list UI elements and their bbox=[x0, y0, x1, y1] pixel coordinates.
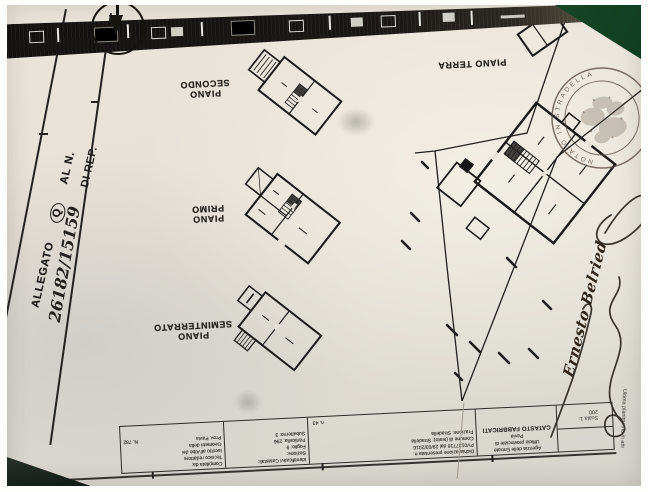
dichiarazione-cell: Dichiarazione presentata n. PV0137716 da… bbox=[307, 410, 476, 464]
photocopy-band-tile bbox=[171, 27, 183, 36]
photocopy-band-tile bbox=[329, 16, 332, 30]
numero-civico: n. 43 bbox=[312, 419, 323, 426]
photocopy-band-tile bbox=[57, 28, 60, 42]
compilata-cell: Compilata da: Tecnico redattore Iscritto… bbox=[120, 422, 225, 473]
border-tick bbox=[39, 133, 48, 135]
photocopy-band-tile bbox=[418, 12, 421, 26]
empty-box bbox=[557, 426, 614, 452]
photocopy-smudge-2 bbox=[233, 389, 263, 415]
di-rep-label: DI REP. bbox=[79, 145, 100, 188]
label-piano-primo: PIANO PRIMO bbox=[175, 202, 242, 225]
photocopy-band-tile bbox=[381, 15, 396, 28]
photocopy-band-tile bbox=[289, 20, 304, 33]
border-tick bbox=[152, 472, 154, 479]
table-surface-bottom-left bbox=[7, 451, 107, 486]
albo-number: N. 782 bbox=[123, 438, 138, 445]
margin-data-text: Data: 23/03/2016 - n. T304365 - Richiede… bbox=[640, 159, 641, 325]
identificativi-cell: Identificativi Catastali: Sezione: Fogli… bbox=[223, 418, 309, 468]
border-tick bbox=[321, 463, 323, 470]
photocopy-band-tile bbox=[470, 11, 473, 25]
north-arrow-stem bbox=[116, 5, 119, 15]
photocopy-band-tile bbox=[29, 31, 44, 44]
label-piano-secondo: PIANO SECONDO bbox=[167, 77, 244, 101]
scala-box: Scala 1: 200 bbox=[556, 403, 613, 429]
photocopy-band-tile bbox=[501, 15, 525, 19]
margin-ultima-text: Ultima planimetria in atti bbox=[620, 389, 628, 448]
photocopy-band-tile bbox=[151, 27, 166, 40]
scala-cell: Scala 1: 200 bbox=[555, 403, 614, 452]
photocopy-band-tile bbox=[201, 22, 204, 36]
north-arrow-head bbox=[109, 15, 123, 35]
agenzia-cell: Agenzia delle Entrate Ufficio provincial… bbox=[474, 406, 557, 456]
photocopy-band-tile bbox=[442, 12, 454, 21]
piano-secondo-plan bbox=[243, 49, 351, 149]
scala-value: Scala 1: 200 bbox=[570, 409, 598, 422]
allegato-side-stamp: ALLEGATO Q AL N. 26182/15159 DI REP. bbox=[7, 43, 134, 424]
paper-sheet: PIANO SECONDO PIANO PRIMO PIANO SEMINTER… bbox=[7, 5, 641, 486]
compilata-prov: Prov. Pavia bbox=[196, 434, 221, 442]
border-tick bbox=[491, 455, 493, 462]
allegato-line2: 26182/15159 DI REP. bbox=[19, 46, 124, 421]
photocopy-band-tile bbox=[351, 17, 363, 26]
photocopy-band-tile bbox=[231, 20, 256, 36]
photocopy-smudge bbox=[335, 107, 377, 137]
piano-primo-plan bbox=[231, 165, 347, 277]
photo-of-cadastral-plan: PIANO SECONDO PIANO PRIMO PIANO SEMINTER… bbox=[0, 0, 648, 492]
